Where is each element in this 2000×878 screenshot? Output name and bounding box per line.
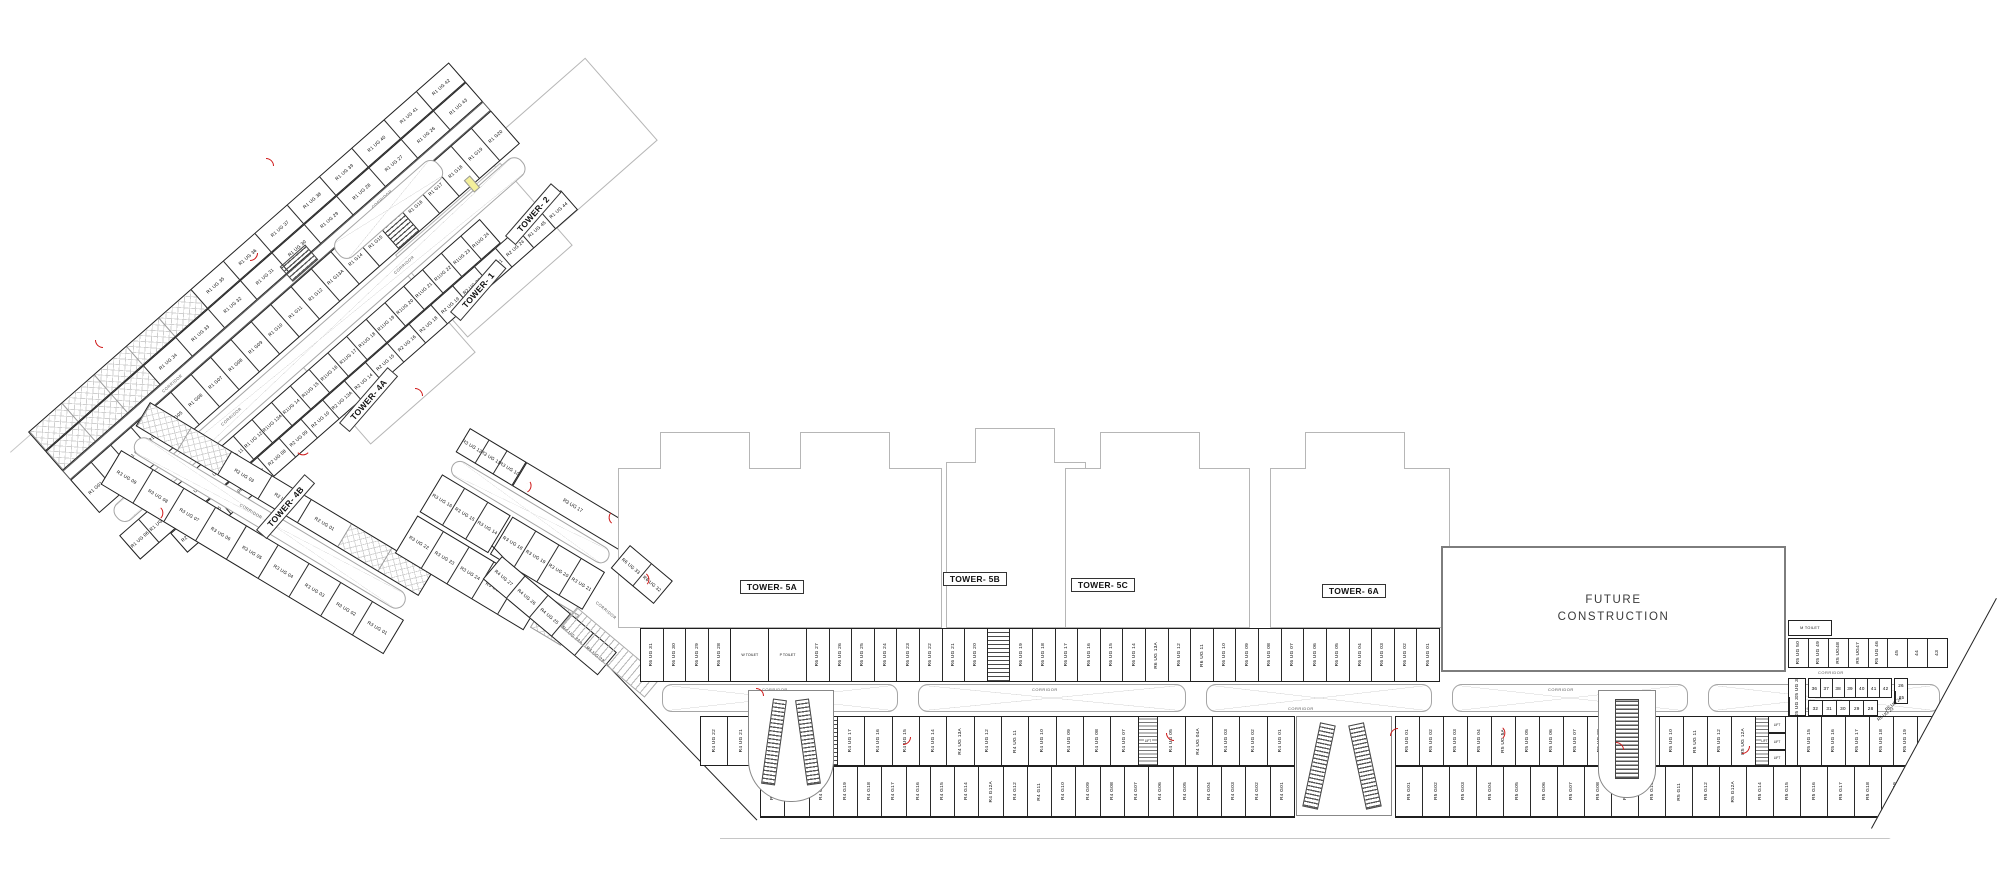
stall-row-36-42: 36373839404142 <box>1808 678 1892 698</box>
corridor-label: CORRIDOR <box>1032 687 1058 692</box>
unit-cell: R5 UG48 <box>1828 639 1848 667</box>
tower5a-tab2 <box>800 432 890 469</box>
unit-cell: R6 UG 29 <box>685 629 708 681</box>
unit-label: R6 UG 20 <box>973 643 978 666</box>
unit-label: R1 UG 43 <box>448 97 468 116</box>
unit-label: R2 UG 08 <box>267 448 287 467</box>
unit-cell: R4 UG 16 <box>864 717 891 765</box>
unit-cell: R6 UG 28 <box>708 629 731 681</box>
escalator-fan-center <box>1296 716 1392 816</box>
unit-label: R4 UG 25 <box>540 607 560 625</box>
unit-label: R1UG 13A <box>261 413 282 433</box>
unit-cell: R6 UG 13A <box>1145 629 1168 681</box>
unit-cell: R4 UG 17 <box>837 717 864 765</box>
unit-cell: R5 UG 11 <box>1683 717 1707 765</box>
unit-cell: 45 <box>1887 639 1907 667</box>
unit-label: R3 UG 09 <box>116 469 138 485</box>
unit-label: R5 UG 17 <box>1855 729 1860 752</box>
unit-cell: R5 UG 04 <box>1467 717 1491 765</box>
unit-label: R4 G12 <box>1013 782 1018 800</box>
unit-label: R4 G09 <box>1086 782 1091 800</box>
stair-cell <box>987 629 1010 681</box>
unit-label: R4 UG 04A <box>1196 728 1201 755</box>
unit-cell: 39 <box>1844 679 1856 697</box>
unit-cell: R4 UG 08 <box>1083 717 1110 765</box>
unit-label: R4 UG 10 <box>1040 729 1045 752</box>
unit-label: R6 UG 16 <box>1087 643 1092 666</box>
unit-cell: R6 UG 16 <box>1077 629 1100 681</box>
unit-label: R5 UG 07 <box>1573 729 1578 752</box>
unit-label: R4 G15 <box>940 782 945 800</box>
toilet-label: P TOILET <box>780 653 796 657</box>
unit-cell: R5 G02 <box>1422 767 1449 816</box>
unit-label: R6 UG 24 <box>883 643 888 666</box>
unit-label: 30 <box>1840 706 1846 711</box>
corridor-label: CORRIDOR <box>595 600 618 620</box>
unit-label: 29 <box>1854 706 1860 711</box>
unit-cell: R4 G15 <box>930 767 954 816</box>
unit-label: R5 UG 02 <box>1429 729 1434 752</box>
unit-label: R4 UG 12 <box>985 729 990 752</box>
corridor-label: CORRIDOR <box>1548 687 1574 692</box>
unit-label: R5 UG 10 <box>1669 729 1674 752</box>
lift-label: LIFT <box>1773 740 1781 744</box>
unit-label: R4 G08 <box>1110 782 1115 800</box>
tower-label-6a: TOWER- 6A <box>1322 584 1386 598</box>
toilet-cell: P TOILET <box>768 629 806 681</box>
unit-cell: R4 UG 10 <box>1028 717 1055 765</box>
unit-label: R4 UG 16 <box>876 729 881 752</box>
unit-cell: R6 UG 12 <box>1168 629 1191 681</box>
unit-cell: R6 UG 08 <box>1258 629 1281 681</box>
unit-label: R4 G04 <box>1207 782 1212 800</box>
unit-cell: R5 G18 <box>1854 767 1881 816</box>
unit-label: R2 UG 16 <box>397 334 417 353</box>
unit-cell: R6 UG 24 <box>874 629 897 681</box>
unit-label: R3 UG 10 <box>499 460 521 476</box>
unit-label: R4 UG 02 <box>1251 729 1256 752</box>
unit-label: R1 UG 28 <box>351 182 371 201</box>
road-line-bottom <box>720 838 1910 839</box>
unit-cell: R4 G14 <box>954 767 978 816</box>
unit-cell: R4 G17 <box>881 767 905 816</box>
unit-label: R4 UG 01 <box>1278 729 1283 752</box>
tower5b-tab <box>975 428 1055 463</box>
stall-row-28-32: 3231302928 <box>1808 700 1878 716</box>
unit-cell: R5 G16 <box>1800 767 1827 816</box>
unit-label: R6 UG 07 <box>1290 643 1295 666</box>
unit-label: R5 G14 <box>1758 782 1763 800</box>
floor-plan: R1 UG 35R1 UG 36R1 UG 37R1 UG 38R1 UG 39… <box>0 0 2000 878</box>
unit-label: R5 G11 <box>1677 783 1682 801</box>
unit-label: R5 UG 04 <box>1477 729 1482 752</box>
unit-label: R4 UG 09 <box>1067 729 1072 752</box>
unit-label: R4 UG 17 <box>848 729 853 752</box>
unit-label: R4 G18 <box>867 782 872 800</box>
lift-label: LIFT <box>1773 756 1781 760</box>
unit-label: R6 UG 14 <box>1132 643 1137 666</box>
unit-label: R3 UG 05 <box>241 544 263 560</box>
unit-label: R5 UG 15 <box>1807 729 1812 752</box>
unit-label: R1UG 15 <box>300 381 319 399</box>
unit-label: R2 UG 10 <box>310 410 330 429</box>
unit-cell: 31 <box>1822 701 1836 715</box>
unit-cell: R4 UG 04A <box>1185 717 1212 765</box>
unit-label: R2 UG 03 <box>234 467 256 483</box>
unit-label: R3 UG 18 <box>502 535 524 551</box>
unit-cell: R6 UG 01 <box>1416 629 1439 681</box>
unit-cell: 44 <box>1907 639 1927 667</box>
tower6a-outline <box>1270 468 1450 628</box>
unit-cell: R4 G02 <box>1245 767 1269 816</box>
unit-cell: R5 UG 17 <box>1845 717 1869 765</box>
unit-label: R5 UG 12 <box>1717 729 1722 752</box>
unit-cell: R5 UG 33 <box>1789 697 1805 715</box>
unit-cell: R4 UG 11 <box>1001 717 1028 765</box>
unit-label: R3 UG 15 <box>454 506 476 522</box>
unit-label: R4 G03 <box>1231 782 1236 800</box>
unit-cell: R5 G01 <box>1396 767 1422 816</box>
unit-label: R1 UG 26 <box>416 125 436 144</box>
unit-label: R5 UG 49 <box>1816 641 1821 664</box>
unit-label: R6 UG 19 <box>1019 643 1024 666</box>
unit-label: R4 G06 <box>1158 782 1163 800</box>
unit-label: R6 UG 05 <box>1335 643 1340 666</box>
tower-label-5b: TOWER- 5B <box>943 572 1007 586</box>
unit-label: R1 G10 <box>267 322 283 337</box>
unit-cell: 36 <box>1809 679 1820 697</box>
unit-cell: R6 UG 02 <box>1394 629 1417 681</box>
unit-label: R4 G01 <box>1280 782 1285 800</box>
unit-cell: R4 G05 <box>1173 767 1197 816</box>
unit-label: R1 G07 <box>207 374 223 389</box>
unit-label: R6 UG 01 <box>1426 643 1431 666</box>
unit-label: 45 <box>1895 650 1900 656</box>
unit-cell: 30 <box>1836 701 1850 715</box>
unit-label: R4 G12A <box>989 781 994 802</box>
unit-label: R2 UG 01 <box>314 515 336 531</box>
unit-cell: R6 UG 03 <box>1371 629 1394 681</box>
unit-cell: 40 <box>1855 679 1867 697</box>
unit-cell: R5 UG 03 <box>1443 717 1467 765</box>
corridor-label: CORRIDOR <box>1818 670 1844 675</box>
unit-cell: R6 UG 21 <box>942 629 965 681</box>
unit-cell: R4 UG 12 <box>974 717 1001 765</box>
unit-label: R6 UG 02 <box>1403 643 1408 666</box>
unit-label: R1UG 14 <box>281 397 300 415</box>
unit-label: R1 UG 31 <box>254 267 274 286</box>
unit-label: R6 UG 25 <box>860 643 865 666</box>
unit-label: R5 G02 <box>1434 782 1439 800</box>
future-construction-line2: CONSTRUCTION <box>1558 609 1670 626</box>
unit-label: R1UG 21 <box>414 281 433 299</box>
lift-box-2: LIFT <box>1768 733 1786 750</box>
unit-label: R3 UG 14 <box>477 519 499 535</box>
unit-label: R3 UG 24 <box>460 565 482 581</box>
unit-label: 40 <box>1859 686 1865 691</box>
toilet-label: W TOILET <box>741 653 758 657</box>
unit-cell: R5 UG 06 <box>1539 717 1563 765</box>
unit-cell: 32 <box>1809 701 1822 715</box>
unit-cell: R4 G16 <box>906 767 930 816</box>
stair-bulb-right <box>1598 690 1656 798</box>
unit-label: R5 G17 <box>1839 782 1844 800</box>
unit-cell: R6 UG 07 <box>1281 629 1304 681</box>
fire-door-marker <box>95 340 103 348</box>
unit-label: R1UG 17 <box>338 347 357 365</box>
unit-label: R1 UG 42 <box>431 77 451 96</box>
unit-label: R2 UG 09 <box>288 429 308 448</box>
unit-cell: R5 G03 <box>1449 767 1476 816</box>
unit-label: R5 G18 <box>1866 782 1871 800</box>
unit-label: R4 UG 21 <box>739 729 744 752</box>
unit-label: R3 UG 02 <box>335 601 357 617</box>
unit-cell: R4 UG 07 <box>1110 717 1137 765</box>
unit-label: R5 UG 11 <box>1693 730 1698 753</box>
unit-label: R3 UG 21 <box>571 576 593 592</box>
unit-label: R3 UG 16 <box>432 492 454 508</box>
unit-label: R1 G08 <box>227 357 243 372</box>
unit-label: R5 UG47 <box>1856 642 1861 664</box>
unit-cell: R6 UG 31 <box>641 629 663 681</box>
unit-label: R1UG 18 <box>357 331 376 349</box>
unit-cell: R6 UG 26 <box>829 629 852 681</box>
unit-cell: R6 UG 18 <box>1032 629 1055 681</box>
unit-label: R1 UG 41 <box>398 106 418 125</box>
unit-cell: R6 UG 14 <box>1122 629 1145 681</box>
unit-label: R1 G18 <box>447 164 463 179</box>
unit-label: R6 UG 26 <box>838 643 843 666</box>
unit-cell: R5 UG 07 <box>1563 717 1587 765</box>
unit-label: R5 G05 <box>1515 782 1520 800</box>
unit-label: R6 UG 29 <box>695 643 700 666</box>
unit-label: R3 UG 19 <box>525 548 547 564</box>
unit-label: R4 G05 <box>1183 782 1188 800</box>
unit-label: R1 G12 <box>307 287 323 302</box>
unit-label: R5 UG 19 <box>1903 729 1908 752</box>
unit-label: R4 UG 13A <box>958 728 963 755</box>
unit-label: 26 <box>1898 683 1904 688</box>
unit-label: R1 G06 <box>187 392 203 407</box>
unit-label: R4 G19 <box>843 782 848 800</box>
unit-label: R4 UG 08 <box>1095 729 1100 752</box>
unit-cell: R6 UG 25 <box>851 629 874 681</box>
tower5c-outline <box>1065 468 1250 628</box>
unit-label: 43 <box>1935 650 1940 656</box>
unit-cell: R6 UG 04 <box>1349 629 1372 681</box>
unit-label: R1 G13A <box>326 268 345 285</box>
unit-label: R3 UG 04 <box>273 563 295 579</box>
unit-cell: R4 G12A <box>978 767 1002 816</box>
unit-cell: R5 UG 16 <box>1821 717 1845 765</box>
future-construction-line1: FUTURE <box>1585 592 1641 609</box>
unit-label: R4 G07 <box>1134 782 1139 800</box>
tower-label-5c: TOWER- 5C <box>1071 578 1135 592</box>
unit-label: R5 G04 <box>1488 782 1493 800</box>
unit-label: R1UG 22 <box>433 264 452 282</box>
lift-box-1: LIFT <box>1768 716 1786 733</box>
unit-cell: 43 <box>1927 639 1947 667</box>
unit-label: R4 G02 <box>1255 782 1260 800</box>
unit-cell: R5 UG 01 <box>1396 717 1419 765</box>
toilet-cell: W TOILET <box>730 629 768 681</box>
unit-label: R6 UG 04 <box>1358 643 1363 666</box>
unit-label: R1 UG 38 <box>302 191 322 210</box>
unit-label: 38 <box>1835 686 1841 691</box>
unit-label: R6 UG 33 <box>621 557 641 575</box>
unit-cell: R4 UG 22 <box>701 717 727 765</box>
unit-label: R5 UG 50 <box>1796 641 1801 664</box>
unit-label: R2 UG 18 <box>418 315 438 334</box>
unit-label: R1 UG 35 <box>205 276 225 295</box>
unit-label: R1 UG 39 <box>334 162 354 181</box>
unit-cell: R4 UG 01 <box>1267 717 1294 765</box>
unit-label: R4 UG 14 <box>931 729 936 752</box>
unit-label: R1 G09 <box>247 339 263 354</box>
unit-label: R2 UG 13A <box>330 390 353 411</box>
unit-label: R4 UG 03 <box>1224 729 1229 752</box>
unit-label: R1 UG 27 <box>383 154 403 173</box>
unit-cell: R4 G01 <box>1270 767 1294 816</box>
unit-cell: R6 UG 30 <box>663 629 686 681</box>
unit-label: 31 <box>1826 706 1832 711</box>
unit-label: R6 UG 23 <box>906 643 911 666</box>
unit-cell: R5 UG 12 <box>1707 717 1731 765</box>
escalator-bulb-left <box>748 690 834 802</box>
m-toilet-label: M TOILET <box>1800 626 1820 630</box>
unit-cell: 26 <box>1895 679 1907 691</box>
unit-label: R6 UG 09 <box>1245 643 1250 666</box>
unit-label: R5 UG 01 <box>1405 729 1410 752</box>
lift-box-3: LIFT <box>1768 750 1786 766</box>
unit-cell: R4 UG 09 <box>1056 717 1083 765</box>
unit-label: R3 UG 22 <box>408 534 430 550</box>
unit-label: R1 UG 34 <box>158 352 178 371</box>
unit-cell: 41 <box>1867 679 1879 697</box>
unit-label: R5 UG 46 <box>1875 641 1880 664</box>
lift-label: LIFT <box>1144 739 1152 743</box>
unit-label: R1 UG 29 <box>319 210 339 229</box>
unit-label: R4 UG 27 <box>494 568 514 586</box>
unit-label: R3 UG 07 <box>179 507 201 523</box>
unit-cell: R5 G06 <box>1530 767 1557 816</box>
unit-row-b-right: R5 UG 01R5 UG 02R5 UG 03R5 UG 04R5 UG 5A… <box>1395 716 1990 766</box>
unit-cell: R5 UG 15 <box>1797 717 1821 765</box>
unit-label: R1UG 24 <box>471 231 490 249</box>
unit-label: R5 G07 <box>1569 782 1574 800</box>
unit-cell: R4 UG 03 <box>1212 717 1239 765</box>
unit-cell: R5 UG 49 <box>1808 639 1828 667</box>
unit-label: R4 G11 <box>1037 783 1042 801</box>
unit-label: R6 UG 10 <box>1222 643 1227 666</box>
unit-cell: R5 G04 <box>1476 767 1503 816</box>
unit-cell: R5 UG 46 <box>1868 639 1888 667</box>
m-toilet-box: M TOILET <box>1788 620 1832 636</box>
unit-row-c-left: R4 G22R4 G21R4 G20R4 G19R4 G18R4 G17R4 G… <box>760 766 1295 818</box>
unit-cell: R4 G03 <box>1221 767 1245 816</box>
unit-label: R1UG 20 <box>395 297 414 315</box>
tower-label-5a: TOWER- 5A <box>740 580 804 594</box>
unit-label: R6 UG 08 <box>1267 643 1272 666</box>
unit-label: R6 UG 11 <box>1200 644 1205 667</box>
unit-label: R5 UG 16 <box>1831 729 1836 752</box>
unit-label: 36 <box>1812 686 1818 691</box>
unit-cell: 37 <box>1820 679 1832 697</box>
unit-cell: R5 G17 <box>1827 767 1854 816</box>
corridor-lozenge-3 <box>1206 684 1432 712</box>
unit-cell: 42 <box>1879 679 1891 697</box>
unit-cell: R5 G05 <box>1503 767 1530 816</box>
unit-label: R6 UG 03 <box>1380 643 1385 666</box>
unit-label: 28 <box>1868 706 1874 711</box>
unit-label: R6 UG 12 <box>1177 643 1182 666</box>
unit-cell: R4 G09 <box>1075 767 1099 816</box>
unit-label: R1UG 16 <box>319 364 338 382</box>
unit-label: 37 <box>1823 686 1829 691</box>
unit-label: R6 UG 13A <box>1154 642 1159 669</box>
unit-cell: R5 UG 12A <box>1731 717 1755 765</box>
unit-label: R1 UG 40 <box>366 134 386 153</box>
tower5c-tab <box>1100 432 1200 469</box>
unit-label: R1 UG 06 <box>129 530 149 549</box>
unit-cell: R5 G07 <box>1557 767 1584 816</box>
unit-cell: R5 UG 50 <box>1789 639 1808 667</box>
unit-cell: R4 G08 <box>1100 767 1124 816</box>
unit-cell: R6 UG 17 <box>1055 629 1078 681</box>
unit-cell: R4 UG 02 <box>1239 717 1266 765</box>
unit-label: R6 UG 15 <box>1109 643 1114 666</box>
unit-label: R5 UG 06 <box>1549 729 1554 752</box>
unit-label: R4 G16 <box>916 782 921 800</box>
stall-row-46-50: R5 UG 50R5 UG 49R5 UG48R5 UG47R5 UG 4645… <box>1788 638 1948 668</box>
unit-cell: R6 UG 23 <box>896 629 919 681</box>
unit-label: R5 UG 03 <box>1453 729 1458 752</box>
unit-cell: R4 UG 13A <box>946 717 973 765</box>
unit-cell: R4 G11 <box>1027 767 1051 816</box>
unit-cell: R4 G07 <box>1124 767 1148 816</box>
unit-label: R1 UG 12 <box>243 430 263 449</box>
unit-cell: R4 G12 <box>1003 767 1027 816</box>
unit-label: R3 UG 08 <box>147 488 169 504</box>
unit-label: R1UG 23 <box>452 247 471 265</box>
unit-cell: R6 UG 19 <box>1009 629 1032 681</box>
unit-cell: R5 G11 <box>1665 767 1692 816</box>
unit-label: R5 G01 <box>1407 782 1412 800</box>
unit-label: R5 G03 <box>1461 782 1466 800</box>
unit-cell: R4 G18 <box>857 767 881 816</box>
unit-label: R4 G10 <box>1061 782 1066 800</box>
unit-label: R5 G08 <box>1596 782 1601 800</box>
unit-label: R6 UG 21 <box>951 643 956 666</box>
unit-row-a: R6 UG 31R6 UG 30R6 UG 29R6 UG 28W TOILET… <box>640 628 1440 682</box>
unit-label: R5 UG 33 <box>1795 697 1800 715</box>
unit-label: R4 UG 07 <box>1122 729 1127 752</box>
unit-cell: R4 G10 <box>1051 767 1075 816</box>
unit-label: 39 <box>1847 686 1853 691</box>
unit-cell: R6 UG 09 <box>1235 629 1258 681</box>
unit-cell: R6 UG 06 <box>1303 629 1326 681</box>
unit-cell: R4 UG 05 <box>1157 717 1184 765</box>
unit-label: 44 <box>1915 650 1920 656</box>
unit-label: R1 G11 <box>287 304 303 319</box>
unit-label: R6 UG 31 <box>649 643 654 666</box>
unit-cell: R4 G06 <box>1148 767 1172 816</box>
arm2-tip-cluster: R3 UG 12R3 UG 11R3 UG 10 R3 UG 17 R3 UG … <box>392 428 633 656</box>
unit-cell: R6 UG 22 <box>919 629 942 681</box>
unit-label: R4 UG 11 <box>1013 730 1018 753</box>
unit-cell: R5 G12A <box>1719 767 1746 816</box>
unit-cell: R6 UG 20 <box>964 629 987 681</box>
